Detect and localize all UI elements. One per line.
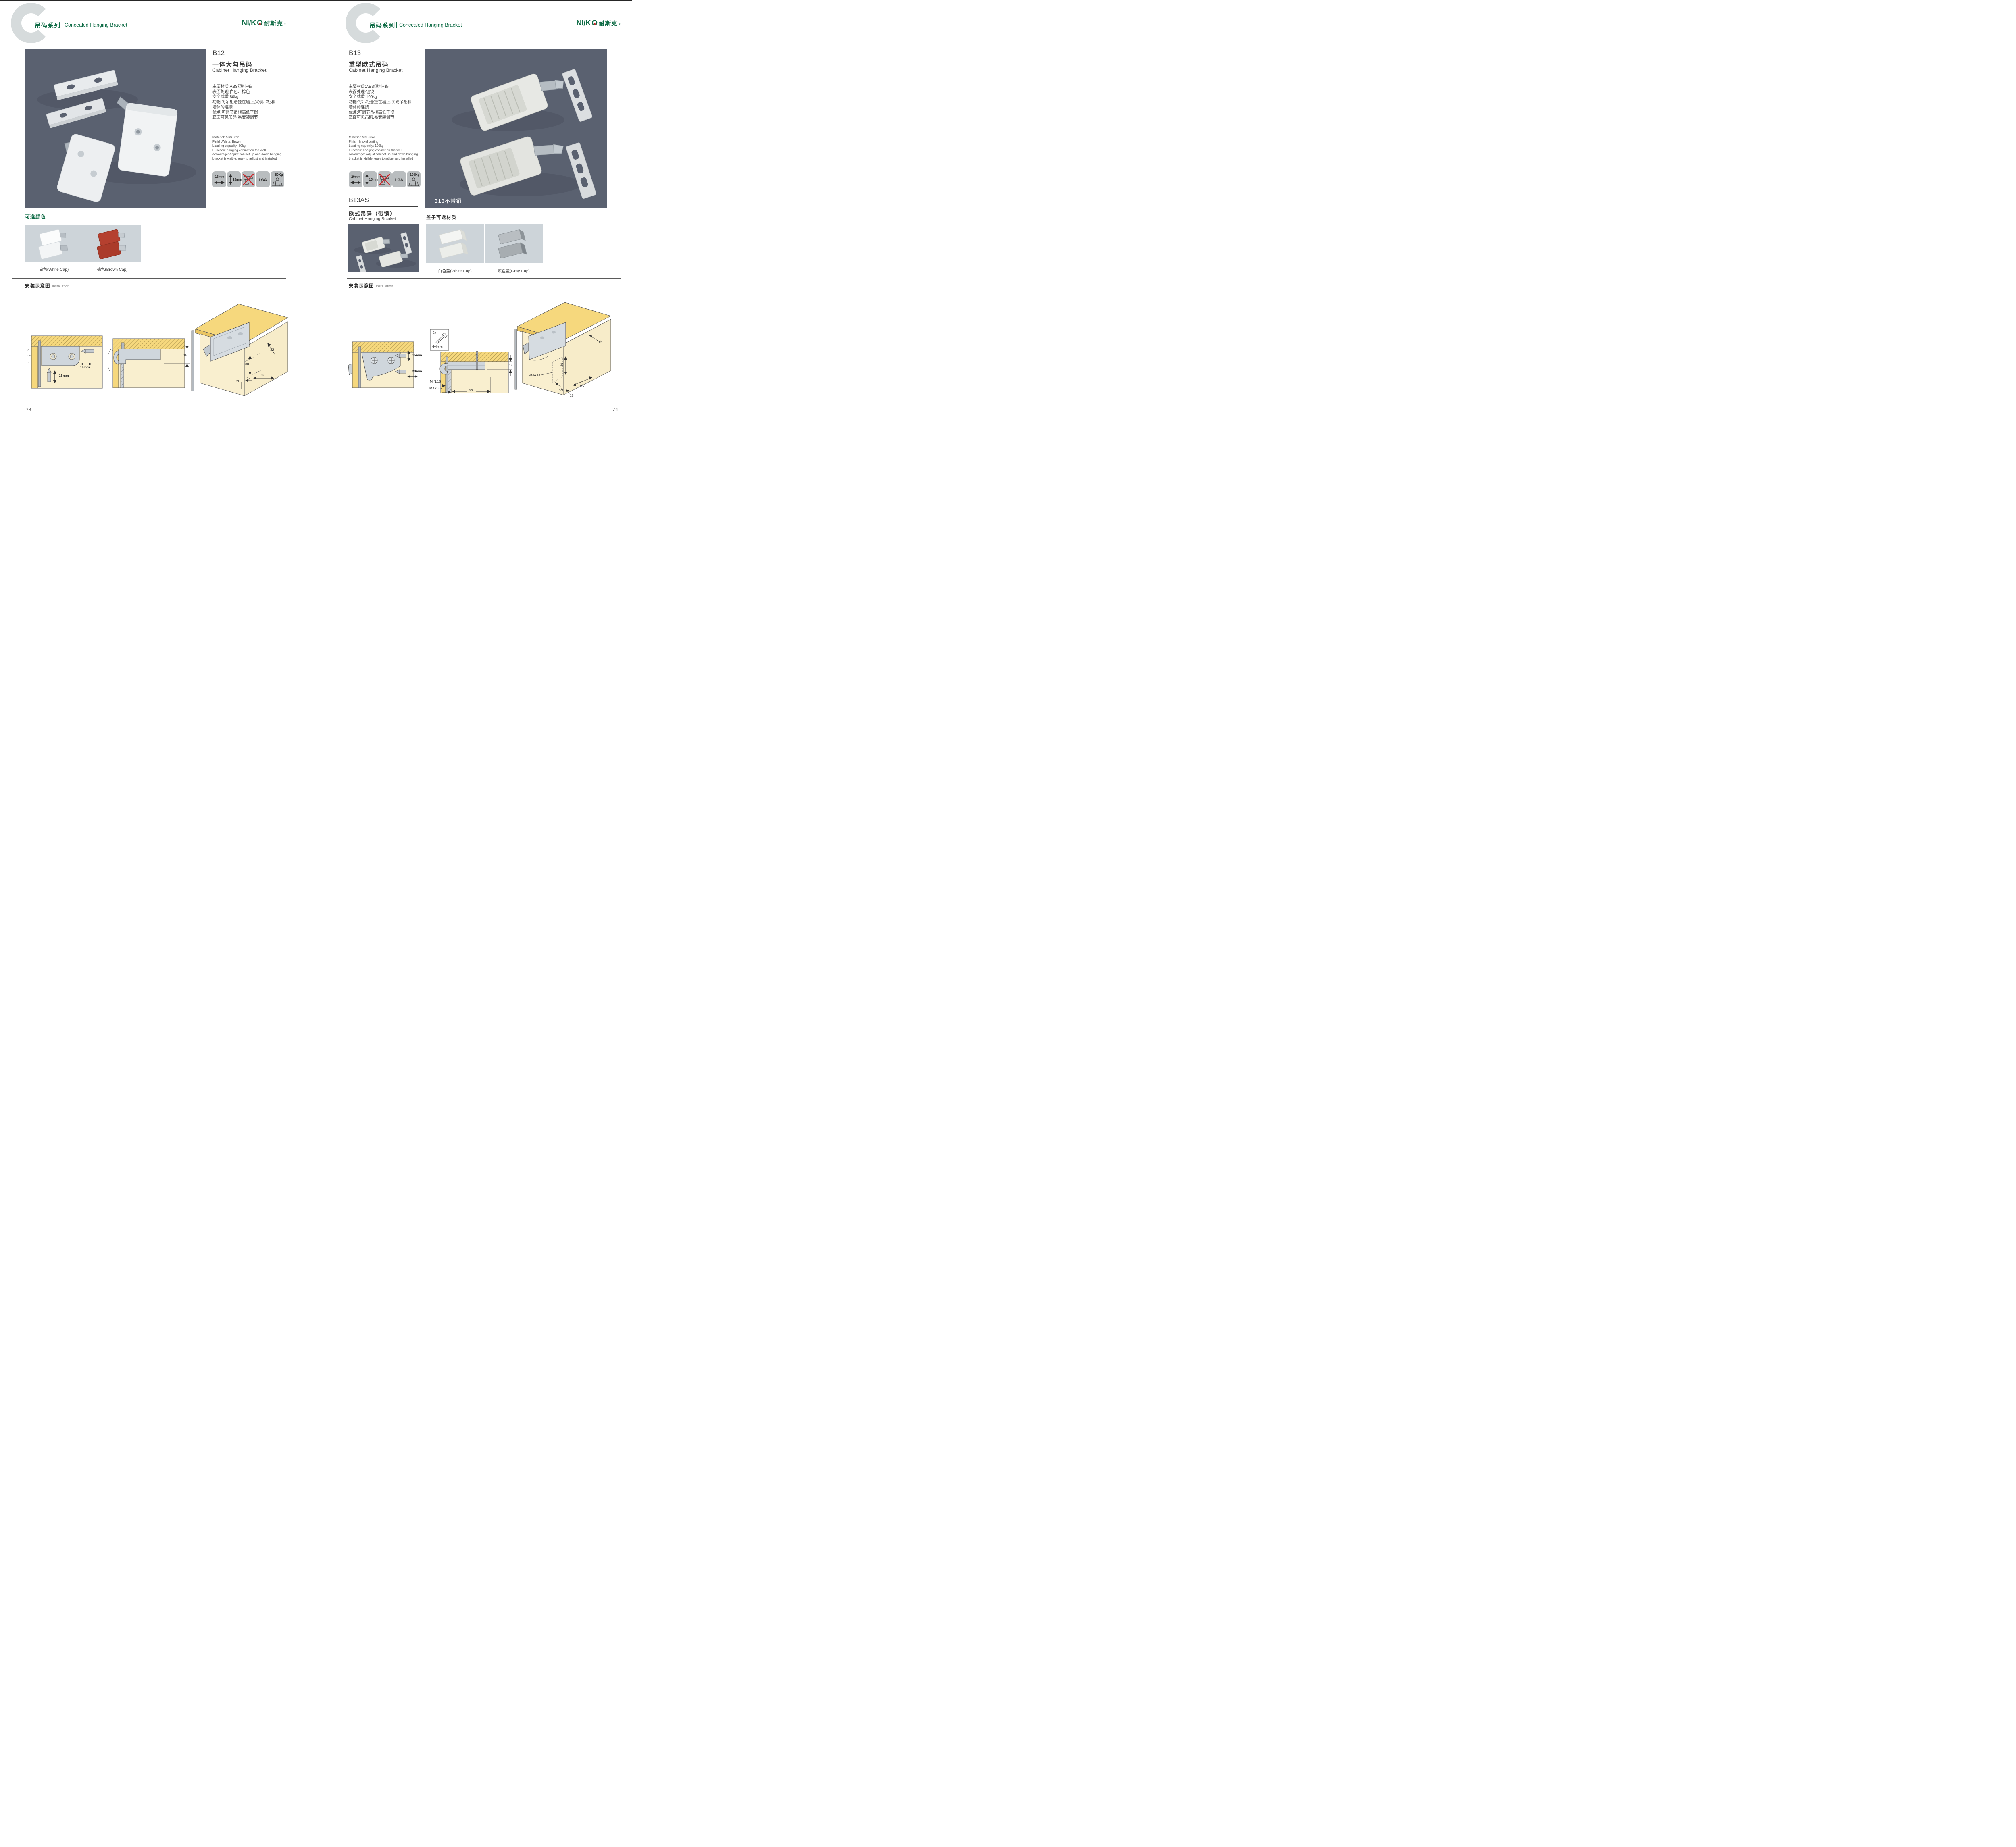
white-cap-image [25,225,83,262]
install-diagram-1: 15mm 20mm [348,331,426,390]
color-swatch-brown [83,225,141,262]
cert-label: LGA [395,178,403,182]
brand-logo-o: O [591,19,598,28]
install-divider [347,278,621,279]
dim-18: 18 [570,393,573,397]
no-drill-icon [243,174,254,185]
spec-cn-line: 表面处理:镀镍 [349,90,412,95]
dim-rmax4: RMAX4 [529,373,540,377]
dim-32: 32 [261,373,264,377]
product-info-b13: B13 重型欧式吊码 Cabinet Hanging Bracket 主要材质:… [349,49,424,214]
dim-20: 20 [236,379,240,383]
load-platform-icon [408,177,420,186]
brand-logo-reg: ® [284,23,286,26]
page-number-right: 74 [612,406,618,413]
spec-cn-line: 主要材质:ABS塑料+铁 [212,85,275,90]
dim-58: 58 [469,388,473,392]
cover-caption-white: 白色盖(White Cap) [426,268,484,274]
sub-product-photo [348,224,419,272]
brand-logo-reg: ® [619,23,621,26]
page-left: 吊码系列 Concealed Hanging Bracket NI/KO耐斯克® [12,0,286,432]
series-title-cn: 吊码系列 [35,21,60,29]
height-value: 15mm [233,178,242,181]
spec-en-line: Function: hanging cabinet on the wall [349,148,418,153]
install-diagram-2-art [429,329,514,395]
spec-en-line: Finish: Nickel plating [349,140,418,144]
color-swatch-white [25,225,83,262]
dim-18: 18 [509,363,512,367]
cover-swatch-white [426,224,484,263]
vertical-arrow-icon [229,174,233,185]
spec-en-line: Loading capacity: 100kg [349,144,418,148]
product-specs-cn: 主要材质:ABS塑料+铁 表面处理:白色、棕色 安全载重:80kg 功能:将吊柜… [212,85,275,121]
brand-logo-o: O [257,19,263,28]
dim-15mm: 15mm [412,353,422,357]
product-photo-b12-image [25,49,206,208]
spec-en-line: bracket is visible, easy to adjust and i… [349,157,418,161]
cert-label: LGA [259,178,267,182]
width-value: 16mm [215,175,224,179]
icon-tile-load: 100Kg [407,171,421,187]
install-title-en: Installation [52,284,69,288]
page-right: 吊码系列 Concealed Hanging Bracket NI/KO耐斯克®… [347,0,621,432]
product-name-en: Cabinet Hanging Bracket [212,67,266,73]
load-value: 80Kg [275,173,283,177]
height-value: 15mm [369,178,378,181]
spec-en-line: Material: ABS+iron [212,135,281,140]
dim-15mm: 15mm [59,374,69,378]
dim-14: 14 [247,376,250,381]
icon-tile-width: 16mm [212,171,226,187]
icon-tile-no-drill [378,171,392,187]
spec-cn-line: 正面可见吊码,易安装调节 [349,115,412,121]
product-specs-en: Material: ABS+iron Finish:White, Brown L… [212,135,281,161]
feature-icons: 20mm 15mm [349,171,421,187]
install-diagram-3: 16 40 RMAX4 19 18 32 [514,297,613,400]
install-diagram-2: 18 [108,330,191,389]
dim-33: 33 [270,347,274,352]
sub-product-code: B13AS [349,197,369,204]
series-title-en: Concealed Hanging Bracket [399,22,462,28]
covers-section-rule [457,217,607,217]
spec-cn-line: 主要材质:ABS塑料+铁 [349,85,412,90]
product-photo-b12 [25,49,206,208]
spec-en-line: Advantage: Adjust cabinet up and down ha… [212,152,281,157]
dim-30: 30 [245,362,249,366]
white-cover-image [426,224,484,263]
brand-logo-text: NI/K [576,19,591,28]
load-value: 100Kg [410,173,419,177]
install-header: 安装示意图 Installation [349,282,393,289]
dim-min: MIN.15 [430,379,441,383]
icon-tile-width: 20mm [349,171,362,187]
series-title-en: Concealed Hanging Bracket [65,22,127,28]
product-photo-b13-image [425,49,607,208]
photo-variant-label: B13不带销 [434,197,462,204]
install-diagram-3-art [514,297,613,400]
dim-18: 18 [183,353,187,357]
page-number-left: 73 [26,406,31,413]
sub-product-name-en: Cabinet Hanging Brcaket [349,216,396,221]
icon-tile-height: 15mm [363,171,377,187]
horizontal-arrow-icon [350,181,361,185]
brand-logo: NI/KO耐斯克® [576,19,621,28]
icon-tile-load: 80Kg [271,171,284,187]
install-title-cn: 安装示意图 [349,284,374,289]
spec-cn-line: 正面可见吊码,易安装调节 [212,115,275,121]
install-title-cn: 安装示意图 [25,284,50,289]
swatch-caption-brown: 棕色(Brown Cap) [83,266,141,272]
icon-tile-no-drill [242,171,255,187]
spec-cn-line: 安全载重:80kg [212,95,275,100]
vertical-arrow-icon [365,174,369,185]
spec-cn-line: 墙体的连接 [212,105,275,110]
spec-en-line: Loading capacity: 80kg [212,144,281,148]
brown-cap-image [83,225,141,262]
install-diagram-2-art [108,330,191,389]
install-diagram-1-art [348,331,426,390]
sub-product-rule [349,206,418,207]
dim-20mm: 20mm [412,369,422,373]
catalog-spread: 吊码系列 Concealed Hanging Bracket NI/KO耐斯克® [0,0,632,432]
spec-cn-line: 墙体的连接 [349,105,412,110]
brand-logo-text: NI/K [242,19,256,28]
install-divider [12,278,286,279]
icon-tile-height: 15mm [227,171,241,187]
cover-caption-gray: 灰色盖(Gray Cap) [485,268,543,274]
spec-cn-line: 安全载重:100kg [349,95,412,100]
swatch-caption-white: 白色(White Cap) [25,266,83,272]
install-title-en: Installation [376,284,393,288]
spec-en-line: Material: ABS+iron [349,135,418,140]
install-diagram-3: 33 30 32 20 14 [190,297,289,399]
install-diagram-1: 16mm 15mm [27,325,105,389]
install-diagram-2: 2x Φ4mm 18 MIN.15 MAX.35 58 [429,329,514,395]
spec-en-line: Finish:White, Brown [212,140,281,144]
brand-logo-cn: 耐斯克 [598,19,618,27]
colors-section-title: 可选颜色 [25,213,46,220]
icon-tile-cert: LGA [392,171,406,187]
sub-product-name-cn: 欧式吊码（带销） [349,209,396,217]
load-platform-icon [271,177,283,186]
product-photo-b13: B13不带销 [425,49,607,208]
screw-diameter: Φ4mm [432,345,443,349]
spec-cn-line: 表面处理:白色、棕色 [212,90,275,95]
covers-section-title: 盖子可选材质 [426,214,456,220]
spec-en-line: Advantage: Adjust cabinet up and down ha… [349,152,418,157]
icon-tile-cert: LGA [256,171,270,187]
brand-logo: NI/KO耐斯克® [242,19,286,28]
spec-en-line: Function: hanging cabinet on the wall [212,148,281,153]
screw-qty: 2x [433,331,436,335]
spec-cn-line: 功能:将吊柜悬挂在墙上,实现吊柜和 [212,100,275,105]
header-rule [12,33,286,33]
dim-40: 40 [560,363,564,366]
dim-16mm: 16mm [80,365,90,369]
width-value: 20mm [351,175,360,179]
install-diagram-3-art [190,297,289,399]
sub-product-photo-image [348,224,419,272]
spec-cn-line: 功能:将吊柜悬挂在墙上,实现吊柜和 [349,100,412,105]
brand-logo-cn: 耐斯克 [264,19,283,27]
spec-cn-line: 优点:可调节吊柜高低平衡 [212,110,275,116]
spec-en-line: bracket is visible, easy to adjust and i… [212,157,281,161]
product-info-b12: B12 一体大勾吊码 Cabinet Hanging Bracket 主要材质:… [212,49,287,214]
product-code: B13 [349,49,361,57]
product-specs-cn: 主要材质:ABS塑料+铁 表面处理:镀镍 安全载重:100kg 功能:将吊柜悬挂… [349,85,412,121]
series-divider [396,22,397,28]
series-title-cn: 吊码系列 [369,21,395,29]
colors-section-rule [49,216,286,216]
product-code: B12 [212,49,225,57]
dim-max: MAX.35 [429,386,442,390]
series-divider [62,22,62,28]
product-name-en: Cabinet Hanging Bracket [349,67,402,73]
install-diagram-1-art [27,325,105,389]
no-drill-icon [379,174,390,185]
product-specs-en: Material: ABS+iron Finish: Nickel platin… [349,135,418,161]
feature-icons: 16mm 15mm [212,171,284,187]
header-rule [347,33,621,33]
install-header: 安装示意图 Installation [25,282,69,289]
gray-cover-image [485,224,543,263]
cover-swatch-gray [485,224,543,263]
horizontal-arrow-icon [214,181,225,185]
spec-cn-line: 优点:可调节吊柜高低平衡 [349,110,412,116]
